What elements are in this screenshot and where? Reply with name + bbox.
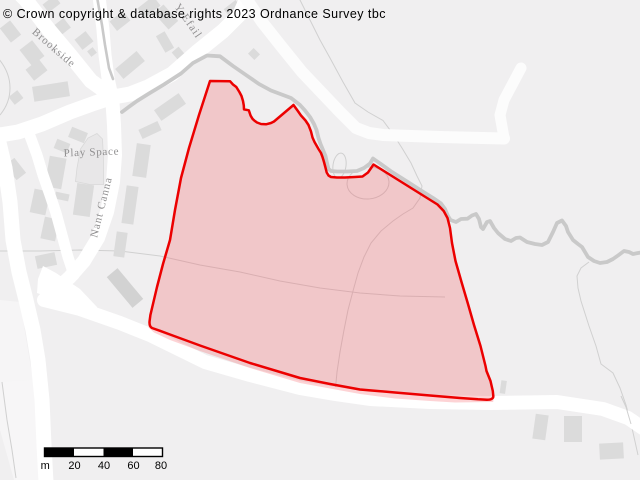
svg-text:m: m [41,460,50,472]
svg-text:60: 60 [127,460,139,472]
svg-text:40: 40 [98,460,110,472]
svg-text:20: 20 [68,460,80,472]
svg-text:80: 80 [155,460,167,472]
svg-text:Play Space: Play Space [63,146,119,160]
svg-text:© Crown copyright & database r: © Crown copyright & database rights 2023… [3,7,386,21]
